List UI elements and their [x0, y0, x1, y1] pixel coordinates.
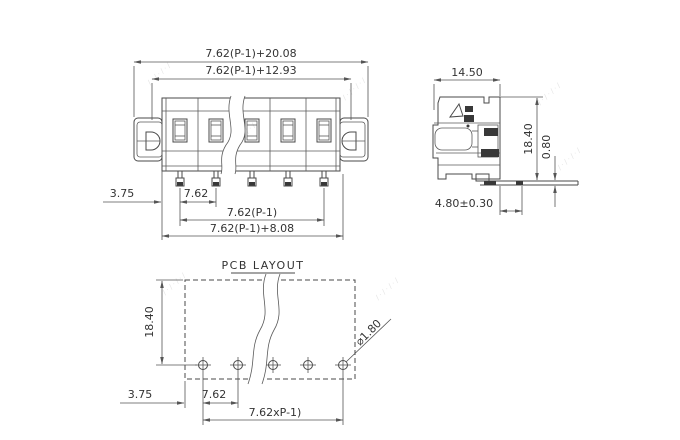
watermark: /·/·/·/: [536, 80, 564, 106]
break-line-band: [221, 96, 245, 174]
hole-3: [265, 357, 281, 373]
pcb-dim-hole-span: 7.62xP-1): [249, 406, 302, 419]
molded-dot-mark: [467, 125, 470, 128]
hole-2: [230, 357, 246, 373]
terminal-window-4: [281, 119, 295, 142]
terminal-window-5: [317, 119, 331, 142]
side-dim-pin-thickness: 0.80: [540, 135, 553, 160]
certification-mark: [465, 106, 473, 112]
technical-drawing: /·/·/·/ /·/·/·/ /·/·/·/ /·/·/·/ /·/·/·/ …: [0, 0, 680, 440]
break-line-band: [248, 274, 280, 384]
watermark: /·/·/·/: [161, 270, 189, 296]
pin-5: [320, 171, 328, 186]
brand-label: [481, 149, 499, 157]
terminal-window-1: [173, 119, 187, 142]
wire-entry-cavity: [435, 128, 472, 150]
pin-1: [176, 171, 184, 186]
pcb-layout-title: PCB LAYOUT: [222, 259, 305, 272]
front-dim-pin-span: 7.62(P-1): [227, 206, 277, 219]
side-dimensions: 14.50 18.40 0.80 4.80±0.30: [434, 66, 555, 215]
watermark: /·/·/·/: [556, 145, 584, 171]
pcb-dim-hole-pitch: 7.62: [202, 388, 227, 401]
side-dim-height: 18.40: [522, 123, 535, 155]
watermark: /·/·/·/: [374, 275, 402, 301]
front-view: 7.62(P-1)+20.08 7.62(P-1)+12.93 3.75 7.6…: [103, 47, 368, 240]
side-dim-pin-length: 4.80±0.30: [435, 197, 493, 210]
terminal-window-2: [209, 119, 223, 142]
front-dim-edge-to-pin: 3.75: [110, 187, 135, 200]
pcb-holes: [195, 357, 351, 373]
certification-mark: [464, 115, 474, 122]
side-dim-depth: 14.50: [451, 66, 483, 79]
pin-2: [212, 171, 220, 186]
pcb-layout-view: PCB LAYOUT 18.40 ⌀1.80: [120, 259, 391, 425]
pin-root: [476, 174, 489, 181]
pcb-dim-edge-to-hole: 3.75: [128, 388, 153, 401]
hole-1: [195, 357, 211, 373]
pin-strip: [484, 181, 496, 185]
pin-3: [248, 171, 256, 186]
pcb-dim-hole-diameter: ⌀1.80: [353, 317, 384, 348]
front-dim-body-width: 7.62(P-1)+8.08: [210, 222, 294, 235]
pin-strip: [516, 181, 523, 185]
connector-body: [162, 98, 340, 171]
mounting-ear-right: [340, 118, 368, 161]
pin-4: [284, 171, 292, 186]
brand-label: [484, 128, 498, 136]
front-dim-inner-width: 7.62(P-1)+12.93: [205, 64, 296, 77]
hole-4: [300, 357, 316, 373]
drawing-sheet: /·/·/·/ /·/·/·/ /·/·/·/ /·/·/·/ /·/·/·/ …: [0, 0, 680, 440]
pcb-dim-row-offset: 18.40: [143, 306, 156, 338]
mounting-ear-left: [134, 118, 162, 161]
front-dim-pitch: 7.62: [184, 187, 209, 200]
molded-triangle-mark: [450, 104, 463, 117]
watermark: /·/·/·/: [146, 60, 174, 86]
front-dim-overall-width: 7.62(P-1)+20.08: [205, 47, 296, 60]
